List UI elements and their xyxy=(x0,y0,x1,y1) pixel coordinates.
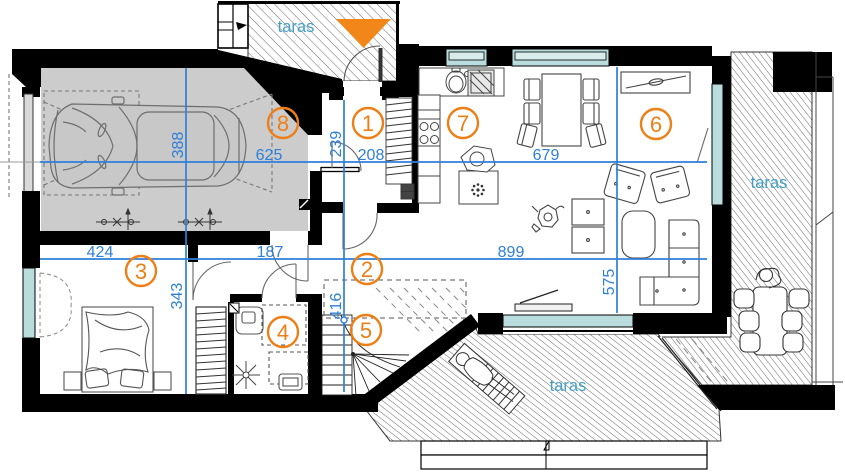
svg-text:679: 679 xyxy=(533,147,560,164)
svg-text:4: 4 xyxy=(277,320,289,345)
svg-text:taras: taras xyxy=(278,18,315,36)
svg-text:575: 575 xyxy=(601,269,618,296)
svg-text:625: 625 xyxy=(256,147,283,164)
svg-text:6: 6 xyxy=(650,112,662,137)
svg-text:239: 239 xyxy=(328,131,345,158)
svg-text:416: 416 xyxy=(328,293,345,320)
svg-text:5: 5 xyxy=(360,318,372,343)
svg-text:187: 187 xyxy=(257,244,284,261)
svg-text:1: 1 xyxy=(362,111,374,136)
svg-text:3: 3 xyxy=(135,259,147,284)
svg-text:208: 208 xyxy=(358,147,385,164)
svg-text:8: 8 xyxy=(277,111,289,136)
svg-text:388: 388 xyxy=(170,132,187,159)
svg-text:2: 2 xyxy=(361,257,373,282)
svg-text:899: 899 xyxy=(498,244,525,261)
svg-text:7: 7 xyxy=(457,111,469,136)
svg-text:343: 343 xyxy=(169,283,186,310)
svg-text:424: 424 xyxy=(87,244,114,261)
svg-text:taras: taras xyxy=(751,174,788,192)
svg-text:taras: taras xyxy=(550,377,587,395)
